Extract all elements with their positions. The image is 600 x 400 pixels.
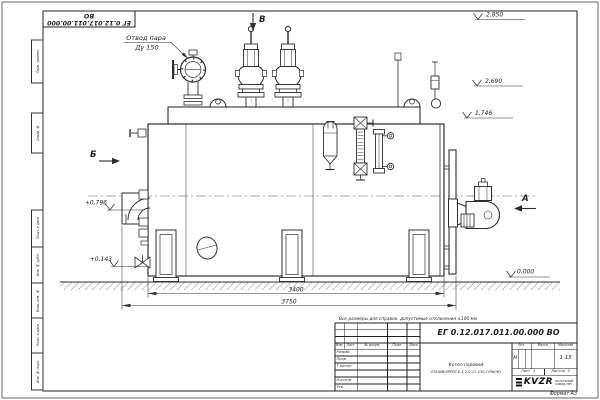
col-header-podp: Подп.: [387, 343, 407, 349]
col-header-docnum: № докум.: [357, 343, 387, 349]
margin-label-inv-dubl: Инв. № дубл.: [32, 247, 44, 283]
elevation-2850: 2,850: [474, 12, 526, 20]
view-v-label: В: [259, 15, 265, 25]
safety-valve-1: [236, 25, 267, 110]
company-name: КОТЕЛЬНЫЙ ЗАВОД РЭП: [555, 380, 573, 387]
view-b-label: Б: [90, 150, 97, 160]
support-leg: [280, 230, 305, 282]
col-header-data: Дата: [407, 343, 420, 349]
lifting-lug: [210, 99, 226, 107]
safety-valve-2: [273, 25, 304, 110]
view-arrow-a: А: [514, 194, 536, 212]
row-label-prov: Пров.: [337, 358, 358, 362]
corner-stamp-number: ЕГ 0.12.017.011.00.000 ВО: [43, 11, 135, 27]
lit-value: М: [512, 349, 519, 369]
sheet-value: 1: [533, 370, 535, 374]
margin-label-inv-podl: Инв. № подл.: [32, 353, 44, 390]
support-leg: [154, 230, 179, 282]
reference-note: Все размеры для справок, допустимые откл…: [339, 317, 559, 322]
format-label: Формат А3: [500, 392, 577, 397]
view-a-label: А: [521, 194, 529, 204]
company-name-line2: ЗАВОД РЭП: [555, 383, 573, 386]
elevation-2690-label: 2,690: [485, 78, 502, 85]
elevation-0143-label: +0,143: [90, 256, 112, 263]
elevation-0000: 0,000: [507, 269, 551, 278]
elevation-0796-label: +0,796: [85, 200, 107, 207]
margin-label-vzam-inv: Взам. инв. №: [32, 283, 44, 318]
col-header-list: Лист: [344, 343, 357, 349]
level-electrode: [395, 53, 402, 107]
row-label-tkontr: Т.контр.: [337, 365, 358, 369]
lifting-lug: [404, 99, 420, 107]
product-name-line1: Котел паровой: [449, 364, 483, 369]
elevation-2850-label: 2,850: [486, 12, 503, 19]
support-leg: [407, 230, 432, 282]
steam-outlet-valve: [173, 50, 206, 105]
kvzr-logo-bars-icon: [516, 378, 522, 388]
left-nozzles: [130, 129, 148, 245]
probe-assembly: [431, 62, 441, 108]
dimension-3750-label: 3750: [281, 299, 296, 306]
scale-value: 1:15: [554, 349, 577, 369]
margin-label-sprav-no: Справ. №: [32, 113, 44, 153]
margin-label-perv-primen: Перв. примен.: [32, 40, 44, 83]
sheets-value: 2: [568, 370, 570, 374]
elevation-1746-label: 1,746: [475, 110, 492, 117]
view-arrow-b: Б: [90, 150, 120, 164]
dimension-3400-label: 3400: [288, 287, 303, 294]
drawing-sheet: Отвод пара Ду 150 Б В А 2,850 2,690 1,: [0, 0, 600, 400]
callout-line1: Отвод пара: [126, 34, 166, 42]
margin-label-podp-data-1: Подп. и дата: [32, 210, 44, 247]
row-label-utv: Утв.: [337, 386, 358, 390]
header-massa: Масса: [531, 343, 554, 349]
row-label-nkontr: Н.контр.: [337, 379, 358, 383]
elevation-2690: 2,690: [473, 78, 524, 86]
sheet-label: Лист: [521, 370, 530, 374]
margin-label-podp-data-2: Подп. и дата: [32, 318, 44, 353]
product-name-line2: STEAMEXPERT-Е-1,2-0,17-130-ГЛЖ(Ж): [431, 371, 501, 375]
elevation-0000-label: 0,000: [517, 269, 534, 276]
col-header-izm: Изм.: [335, 343, 344, 349]
kvzr-logo-text: KVZR: [524, 378, 553, 387]
sheets-label: Листов: [551, 370, 564, 374]
product-name: Котел паровой STEAMEXPERT-Е-1,2-0,17-130…: [420, 348, 512, 391]
row-label-razrab: Разраб.: [337, 351, 358, 355]
company-logo-cell: KVZR КОТЕЛЬНЫЙ ЗАВОД РЭП: [512, 375, 577, 391]
steam-platform: [168, 107, 420, 124]
ground-line: [60, 282, 560, 290]
view-arrow-v: В: [250, 13, 266, 31]
elevation-1746: 1,746: [463, 110, 514, 118]
steam-outlet-callout: Отвод пара Ду 150: [124, 34, 188, 59]
titleblock-designation: ЕГ 0.12.017.011.00.000 ВО: [420, 323, 577, 343]
callout-line2: Ду 150: [134, 44, 158, 52]
